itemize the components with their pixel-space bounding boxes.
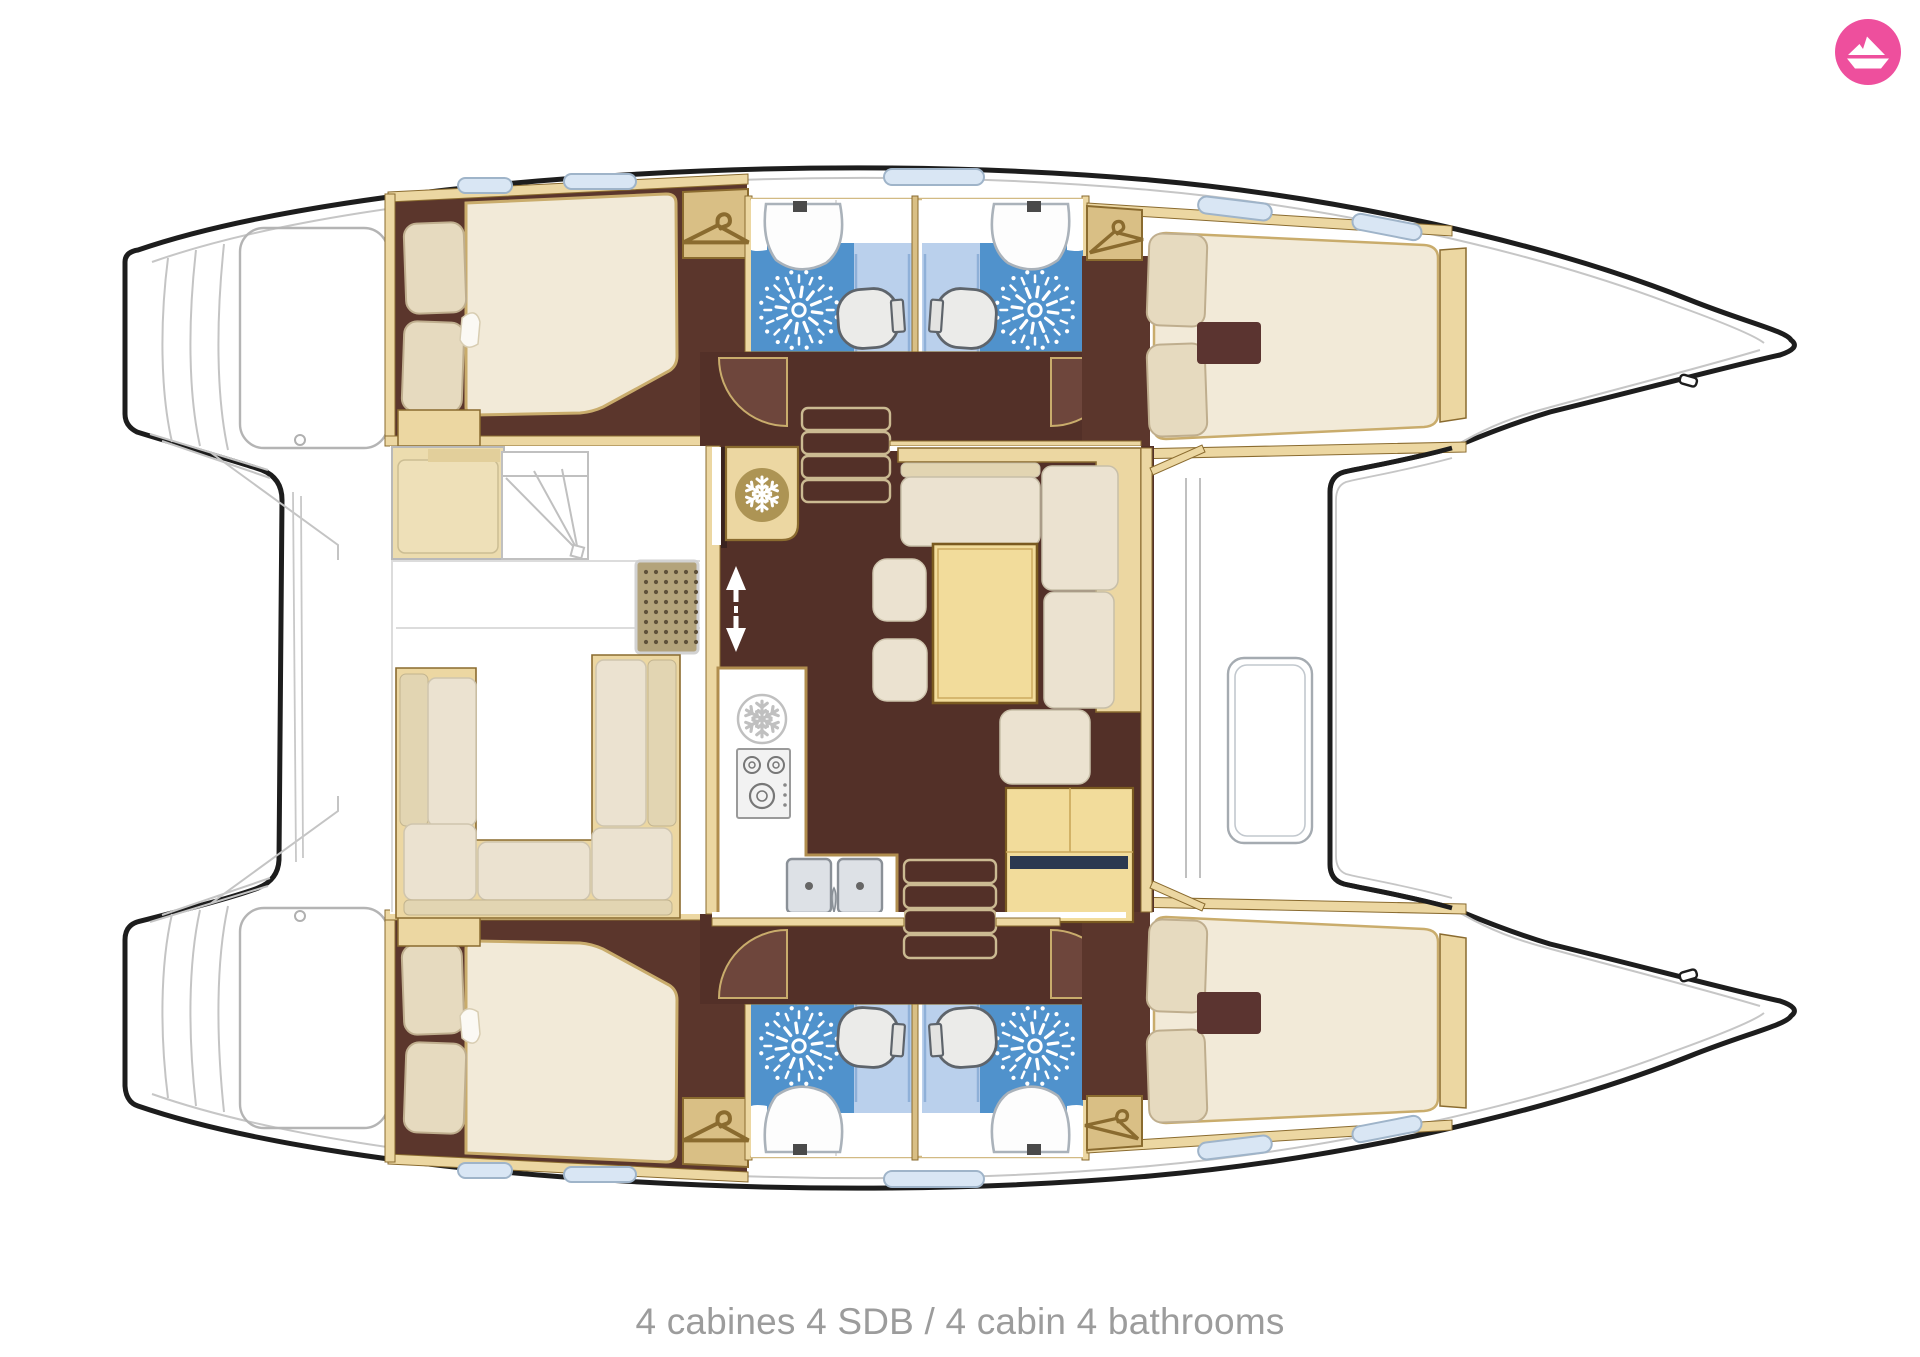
svg-text:4 cabines 4 SDB / 4 cabin 4 ba: 4 cabines 4 SDB / 4 cabin 4 bathrooms — [635, 1301, 1284, 1342]
